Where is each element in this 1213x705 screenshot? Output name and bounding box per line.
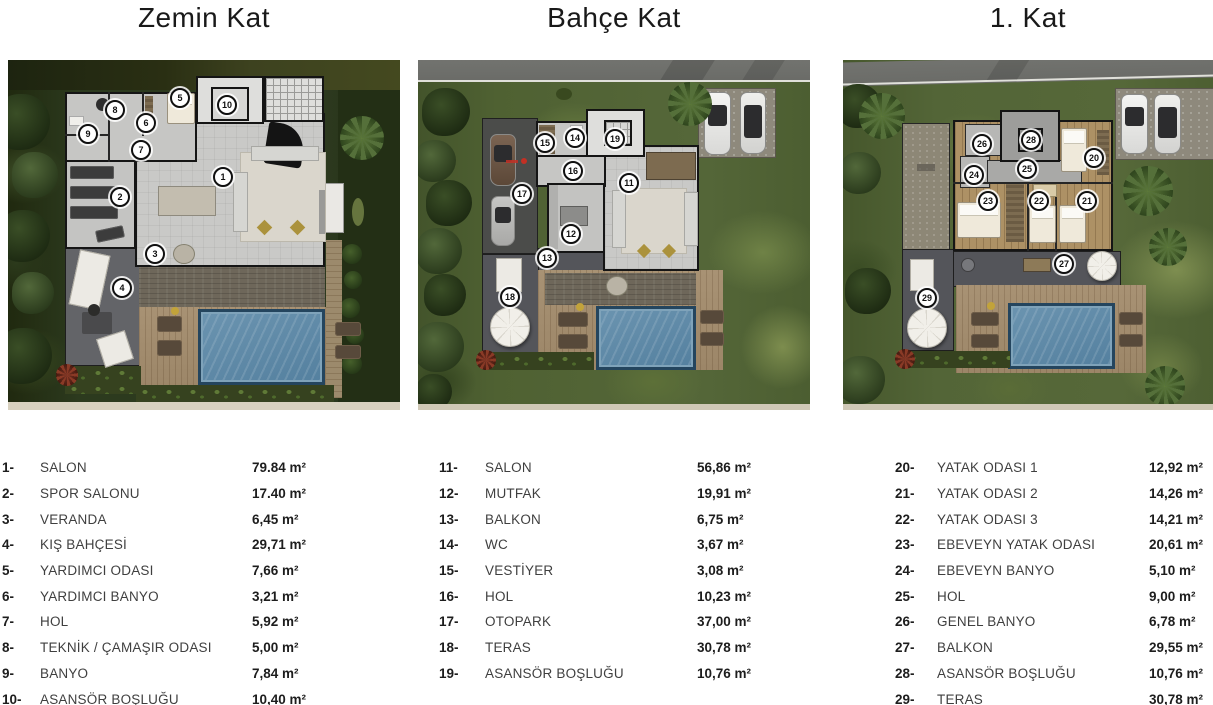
bush: [342, 244, 362, 264]
tree: [12, 152, 58, 198]
tree: [843, 356, 885, 404]
room-badge: 4: [112, 278, 132, 298]
bush: [344, 271, 362, 289]
room-label: YATAK ODASI 1: [937, 460, 1149, 475]
room-label: BALKON: [485, 512, 697, 527]
room-area: 12,92 m²: [1149, 460, 1213, 475]
room-label: EBEVEYN YATAK ODASI: [937, 537, 1149, 552]
room-badge: 2: [110, 187, 130, 207]
room-badge: 22: [1029, 191, 1049, 211]
room-label: VERANDA: [40, 512, 252, 527]
garden-walkway: [326, 240, 342, 398]
road-edge-line: [418, 80, 810, 82]
legend-row: 28 ASANSÖR BOŞLUĞU 10,76 m²: [895, 661, 1213, 687]
floor-plan-zemin-kat: 1 2 3 4 5 6 7 8 9 10: [8, 60, 400, 410]
legend-row: 14 WC 3,67 m²: [439, 532, 769, 558]
room-label: TERAS: [485, 640, 697, 655]
room-number: 21: [895, 486, 937, 501]
flower-bed: [904, 351, 1010, 368]
room-badge: 29: [917, 288, 937, 308]
room-area: 37,00 m²: [697, 614, 769, 629]
room-badge: 1: [213, 167, 233, 187]
plot-edge: [843, 404, 1213, 410]
floor-title-zemin-kat: Zemin Kat: [8, 2, 400, 34]
room-label: HOL: [40, 614, 252, 629]
room-area: 30,78 m²: [1149, 692, 1213, 705]
palm-tree: [668, 82, 712, 126]
swimming-pool: [1008, 303, 1115, 369]
room-area: 56,86 m²: [697, 460, 769, 475]
floor-plan-1-kat: 20 21 22 23 24 25 26 27 28 29: [843, 60, 1213, 410]
room-number: 27: [895, 640, 937, 655]
legend-row: 7 HOL 5,92 m²: [2, 609, 354, 635]
legend-row: 12 MUTFAK 19,91 m²: [439, 481, 769, 507]
room-number: 6: [2, 589, 40, 604]
legend-row: 29 TERAS 30,78 m²: [895, 686, 1213, 705]
room-label: YATAK ODASI 3: [937, 512, 1149, 527]
room-area: 5,92 m²: [252, 614, 354, 629]
room-badge: 24: [964, 165, 984, 185]
palm-tree: [1145, 366, 1185, 406]
room-number: 26: [895, 614, 937, 629]
roof-label-mark: [917, 164, 935, 171]
tree: [8, 94, 50, 150]
room-number: 13: [439, 512, 485, 527]
room-badge: 19: [605, 129, 625, 149]
round-table: [173, 244, 195, 264]
legend-row: 3 VERANDA 6,45 m²: [2, 506, 354, 532]
room-label: TERAS: [937, 692, 1149, 705]
room-area: 79.84 m²: [252, 460, 354, 475]
legend-row: 15 VESTİYER 3,08 m²: [439, 558, 769, 584]
room-area: 17.40 m²: [252, 486, 354, 501]
room-number: 3: [2, 512, 40, 527]
room-label: VESTİYER: [485, 563, 697, 578]
room-label: ASANSÖR BOŞLUĞU: [485, 666, 697, 681]
shrub: [556, 88, 572, 100]
red-plant: [895, 349, 915, 369]
red-plant: [56, 364, 78, 386]
legend-row: 6 YARDIMCI BANYO 3,21 m²: [2, 583, 354, 609]
room-number: 12: [439, 486, 485, 501]
room-badge: 27: [1054, 254, 1074, 274]
room-label: BALKON: [937, 640, 1149, 655]
stone-patio: [139, 267, 325, 309]
stairwell: [264, 76, 324, 122]
room-badge: 14: [565, 128, 585, 148]
room-badge: 13: [537, 248, 557, 268]
bed: [1029, 205, 1056, 243]
legend-row: 23 EBEVEYN YATAK ODASI 20,61 m²: [895, 532, 1213, 558]
room-area: 10,23 m²: [697, 589, 769, 604]
room-badge: 5: [170, 88, 190, 108]
rug: [621, 188, 687, 254]
tree: [8, 210, 50, 262]
room-area: 30,78 m²: [697, 640, 769, 655]
room-number: 23: [895, 537, 937, 552]
closet: [1006, 184, 1024, 242]
tree: [418, 140, 456, 182]
legend-row: 19 ASANSÖR BOŞLUĞU 10,76 m²: [439, 661, 769, 687]
car: [491, 196, 515, 246]
sofa: [251, 146, 319, 161]
room-label: ASANSÖR BOŞLUĞU: [937, 666, 1149, 681]
legend-row: 4 KIŞ BAHÇESİ 29,71 m²: [2, 532, 354, 558]
floor-title-1-kat: 1. Kat: [843, 2, 1213, 34]
room-number: 25: [895, 589, 937, 604]
room-badge: 21: [1077, 191, 1097, 211]
umbrella-icon: [490, 307, 530, 347]
room-badge: 16: [563, 161, 583, 181]
room-label: TEKNİK / ÇAMAŞIR ODASI: [40, 640, 252, 655]
room-label: GENEL BANYO: [937, 614, 1149, 629]
room-label: SALON: [485, 460, 697, 475]
room-label: SALON: [40, 460, 252, 475]
room-area: 6,45 m²: [252, 512, 354, 527]
room-label: YARDIMCI BANYO: [40, 589, 252, 604]
pool-lounger: [335, 345, 361, 359]
balcony-table: [961, 258, 975, 272]
palm-tree: [859, 93, 905, 139]
room-badge: 10: [217, 95, 237, 115]
room-label: YARDIMCI ODASI: [40, 563, 252, 578]
room-area: 3,08 m²: [697, 563, 769, 578]
room-badge: 9: [78, 124, 98, 144]
legend-row: 22 YATAK ODASI 3 14,21 m²: [895, 506, 1213, 532]
side-table: [171, 307, 179, 315]
room-label: EBEVEYN BANYO: [937, 563, 1149, 578]
room-area: 3,67 m²: [697, 537, 769, 552]
room-badge: 8: [105, 100, 125, 120]
room-badge: 15: [535, 133, 555, 153]
room-label: YATAK ODASI 2: [937, 486, 1149, 501]
flower-bed: [484, 352, 594, 370]
room-area: 3,21 m²: [252, 589, 354, 604]
room-number: 7: [2, 614, 40, 629]
tree: [426, 180, 472, 226]
room-number: 19: [439, 666, 485, 681]
sofa: [612, 190, 626, 248]
room-area: 19,91 m²: [697, 486, 769, 501]
floor-plan-sheet: Zemin Kat Bahçe Kat 1. Kat: [0, 0, 1213, 705]
sofa: [233, 172, 248, 232]
kitchen-island: [560, 206, 588, 226]
tree: [424, 274, 466, 316]
sofa: [684, 192, 698, 246]
room-area: 14,21 m²: [1149, 512, 1213, 527]
legend-row: 26 GENEL BANYO 6,78 m²: [895, 609, 1213, 635]
tree: [843, 152, 881, 194]
room-label: BANYO: [40, 666, 252, 681]
outdoor-sofa: [82, 312, 112, 334]
legend-row: 10 ASANSÖR BOŞLUĞU 10,40 m²: [2, 686, 354, 705]
umbrella-icon: [907, 308, 947, 348]
room-badge: 6: [136, 113, 156, 133]
palm-tree: [340, 116, 384, 160]
room-label: WC: [485, 537, 697, 552]
room-number: 17: [439, 614, 485, 629]
room-label: OTOPARK: [485, 614, 697, 629]
legend-row: 27 BALKON 29,55 m²: [895, 635, 1213, 661]
umbrella-icon: [1087, 251, 1117, 281]
legend-1-kat: 20 YATAK ODASI 1 12,92 m² 21 YATAK ODASI…: [895, 455, 1213, 705]
room-badge: 11: [619, 173, 639, 193]
room-number: 28: [895, 666, 937, 681]
room-number: 22: [895, 512, 937, 527]
dining-table: [646, 152, 696, 180]
kitchen-counter: [549, 185, 558, 249]
room-area: 10,76 m²: [1149, 666, 1213, 681]
legend-row: 25 HOL 9,00 m²: [895, 583, 1213, 609]
room-label: ASANSÖR BOŞLUĞU: [40, 692, 252, 705]
red-plant: [476, 350, 496, 370]
floor-title-bahce-kat: Bahçe Kat: [418, 2, 810, 34]
room-area: 5,10 m²: [1149, 563, 1213, 578]
pool-lounger: [971, 334, 999, 348]
pool-lounger: [700, 310, 724, 324]
swing-bench: [1023, 258, 1051, 272]
room-number: 14: [439, 537, 485, 552]
room-number: 4: [2, 537, 40, 552]
pool-lounger: [558, 334, 588, 349]
pool-lounger: [558, 312, 588, 327]
red-marker: [521, 158, 527, 164]
pool-lounger: [971, 312, 999, 326]
pool-lounger: [157, 340, 182, 356]
legend-row: 1 SALON 79.84 m²: [2, 455, 354, 481]
pool-lounger: [157, 316, 182, 332]
room-area: 10,76 m²: [697, 666, 769, 681]
room-number: 15: [439, 563, 485, 578]
legend-row: 8 TEKNİK / ÇAMAŞIR ODASI 5,00 m²: [2, 635, 354, 661]
room-label: MUTFAK: [485, 486, 697, 501]
room-number: 8: [2, 640, 40, 655]
room-badge: 28: [1021, 130, 1041, 150]
palm-tree: [1149, 228, 1187, 266]
room-badge: 7: [131, 140, 151, 160]
room-badge: 20: [1084, 148, 1104, 168]
tree: [845, 268, 891, 314]
plot-edge: [418, 404, 810, 410]
pool-lounger: [1119, 334, 1143, 347]
tree: [418, 228, 462, 274]
legend-row: 21 YATAK ODASI 2 14,26 m²: [895, 481, 1213, 507]
room-badge: 17: [512, 184, 532, 204]
room-area: 6,75 m²: [697, 512, 769, 527]
side-table: [987, 302, 995, 310]
plot-edge: [8, 402, 400, 410]
legend-row: 20 YATAK ODASI 1 12,92 m²: [895, 455, 1213, 481]
swimming-pool: [596, 306, 696, 370]
bed: [1059, 205, 1086, 243]
room-number: 1: [2, 460, 40, 475]
legend-row: 13 BALKON 6,75 m²: [439, 506, 769, 532]
legend-row: 11 SALON 56,86 m²: [439, 455, 769, 481]
pool-lounger: [335, 322, 361, 336]
room-area: 20,61 m²: [1149, 537, 1213, 552]
room-area: 29,71 m²: [252, 537, 354, 552]
tree: [418, 322, 464, 372]
car: [1154, 94, 1181, 154]
room-number: 5: [2, 563, 40, 578]
car: [740, 92, 766, 154]
room-area: 10,40 m²: [252, 692, 354, 705]
hedge-row: [136, 385, 334, 402]
room-badge: 12: [561, 224, 581, 244]
tree: [8, 328, 52, 384]
room-number: 20: [895, 460, 937, 475]
legend-bahce-kat: 11 SALON 56,86 m² 12 MUTFAK 19,91 m² 13 …: [439, 455, 769, 686]
room-badge: 3: [145, 244, 165, 264]
side-table: [576, 303, 584, 311]
gym-equipment: [70, 166, 114, 179]
room-badge: 26: [972, 134, 992, 154]
tree: [422, 88, 470, 136]
gravel-roof: [902, 123, 950, 250]
car: [1121, 94, 1148, 154]
room-area: 14,26 m²: [1149, 486, 1213, 501]
room-area: 7,66 m²: [252, 563, 354, 578]
room-number: 18: [439, 640, 485, 655]
tree: [12, 272, 54, 314]
room-area: 5,00 m²: [252, 640, 354, 655]
red-annotation: [506, 160, 518, 163]
legend-row: 5 YARDIMCI ODASI 7,66 m²: [2, 558, 354, 584]
room-number: 16: [439, 589, 485, 604]
room-badge: 23: [978, 191, 998, 211]
flower-patch: [352, 198, 364, 226]
legend-row: 24 EBEVEYN BANYO 5,10 m²: [895, 558, 1213, 584]
legend-row: 9 BANYO 7,84 m²: [2, 661, 354, 687]
dining-table: [158, 186, 216, 216]
tv-console: [319, 190, 325, 234]
room-number: 29: [895, 692, 937, 705]
room-number: 24: [895, 563, 937, 578]
legend-zemin-kat: 1 SALON 79.84 m² 2 SPOR SALONU 17.40 m² …: [2, 455, 354, 705]
room-label: HOL: [485, 589, 697, 604]
plant-pot: [88, 304, 100, 316]
legend-row: 18 TERAS 30,78 m²: [439, 635, 769, 661]
round-table: [606, 276, 628, 296]
room-area: 9,00 m²: [1149, 589, 1213, 604]
bed: [1061, 128, 1087, 172]
bush: [340, 298, 360, 318]
terrace-table: [910, 259, 934, 291]
room-area: 7,84 m²: [252, 666, 354, 681]
room-area: 29,55 m²: [1149, 640, 1213, 655]
room-label: HOL: [937, 589, 1149, 604]
room-number: 9: [2, 666, 40, 681]
palm-tree: [1123, 166, 1173, 216]
room-badge: 18: [500, 287, 520, 307]
room-label: SPOR SALONU: [40, 486, 252, 501]
legend-row: 16 HOL 10,23 m²: [439, 583, 769, 609]
legend-row: 2 SPOR SALONU 17.40 m²: [2, 481, 354, 507]
swimming-pool: [198, 309, 325, 385]
room-number: 10: [2, 692, 40, 705]
legend-row: 17 OTOPARK 37,00 m²: [439, 609, 769, 635]
room-number: 2: [2, 486, 40, 501]
room-area: 6,78 m²: [1149, 614, 1213, 629]
pool-lounger: [700, 332, 724, 346]
room-badge: 25: [1017, 159, 1037, 179]
room-label: KIŞ BAHÇESİ: [40, 537, 252, 552]
gym-equipment: [70, 206, 118, 219]
floor-plan-bahce-kat: 11 12 13 14 15 16 17 18 19: [418, 60, 810, 410]
pool-lounger: [1119, 312, 1143, 325]
room-number: 11: [439, 460, 485, 475]
